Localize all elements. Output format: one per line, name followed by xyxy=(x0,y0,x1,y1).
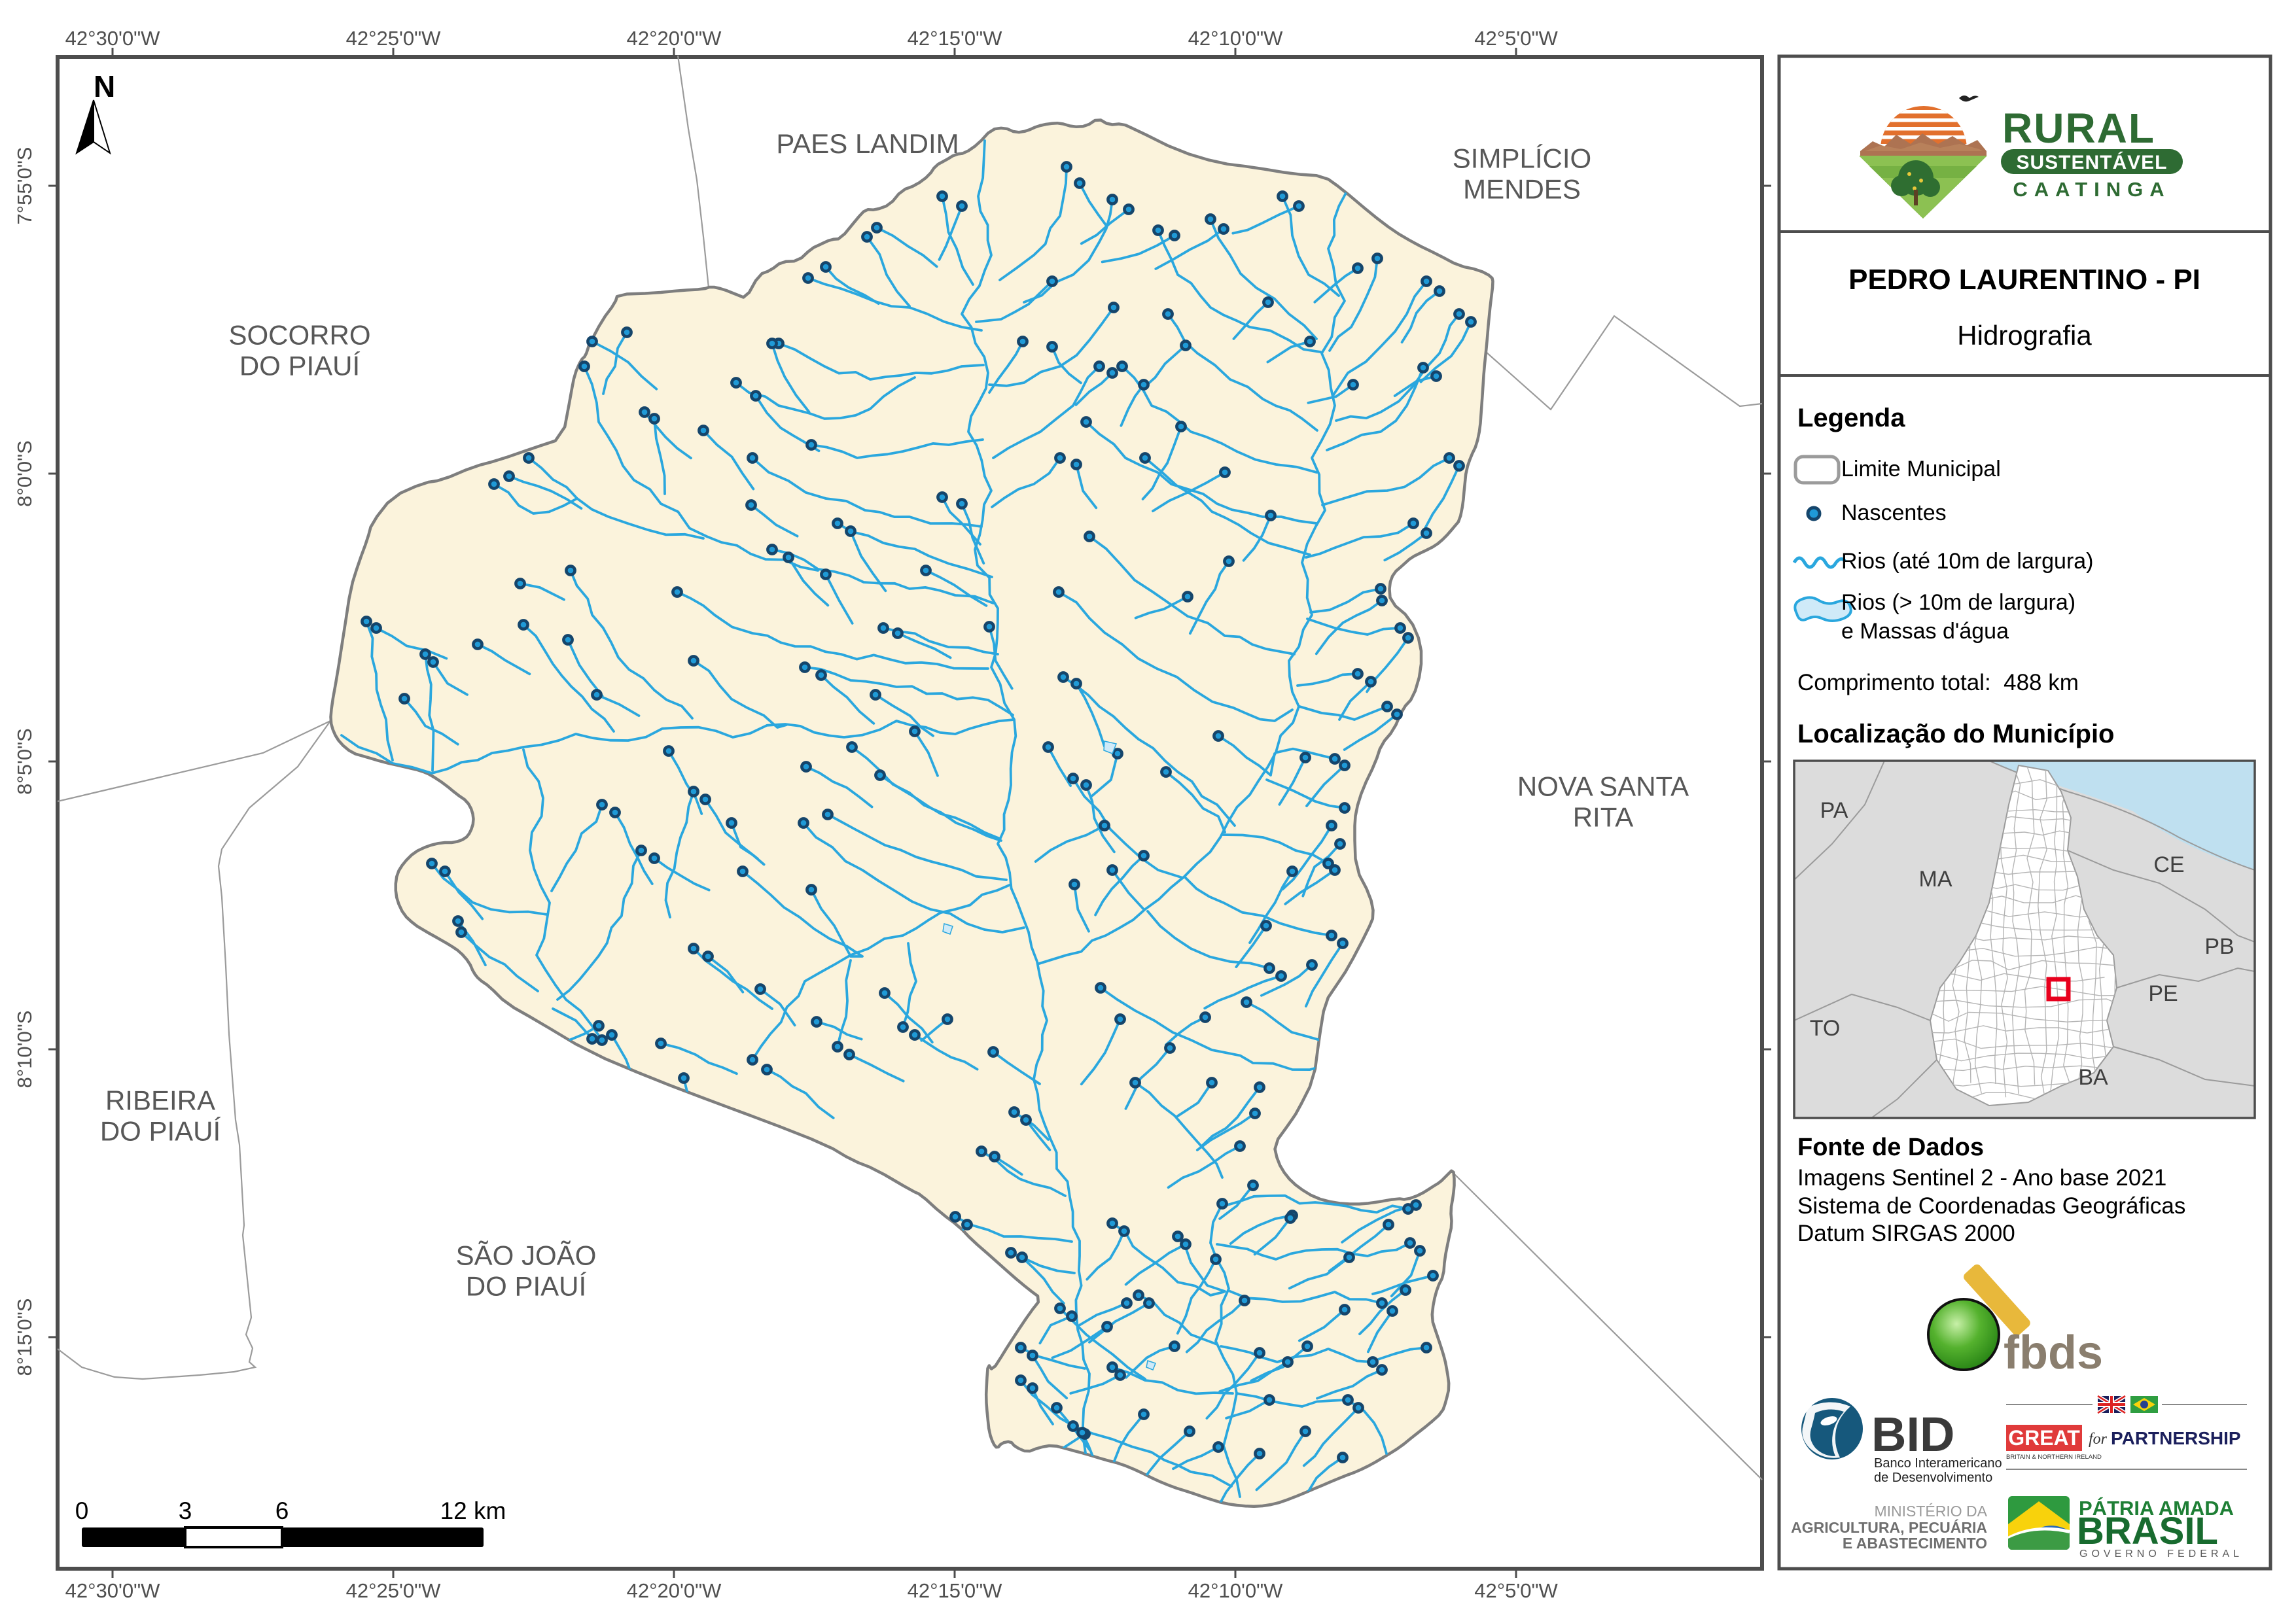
svg-text:Localização do Município: Localização do Município xyxy=(1797,720,2115,748)
svg-text:fbds: fbds xyxy=(2004,1327,2103,1379)
svg-text:8°0'0"S: 8°0'0"S xyxy=(13,440,36,507)
svg-text:PEDRO LAURENTINO - PI: PEDRO LAURENTINO - PI xyxy=(1848,264,2200,296)
svg-text:DO PIAUÍ: DO PIAUÍ xyxy=(466,1271,587,1302)
svg-text:0: 0 xyxy=(75,1497,89,1524)
svg-text:PE: PE xyxy=(2148,981,2178,1006)
svg-text:42°15'0"W: 42°15'0"W xyxy=(908,1579,1003,1602)
svg-text:Nascentes: Nascentes xyxy=(1841,500,1947,525)
svg-text:GOVERNO FEDERAL: GOVERNO FEDERAL xyxy=(2079,1548,2243,1560)
svg-text:42°10'0"W: 42°10'0"W xyxy=(1188,1579,1284,1602)
svg-text:Banco Interamericano: Banco Interamericano xyxy=(1874,1456,2002,1471)
svg-text:42°20'0"W: 42°20'0"W xyxy=(627,27,722,50)
svg-text:42°20'0"W: 42°20'0"W xyxy=(627,1579,722,1602)
svg-text:RIBEIRA: RIBEIRA xyxy=(105,1085,215,1116)
svg-text:42°30'0"W: 42°30'0"W xyxy=(65,27,161,50)
svg-text:MINISTÉRIO DA: MINISTÉRIO DA xyxy=(1874,1503,1987,1520)
svg-text:Datum SIRGAS 2000: Datum SIRGAS 2000 xyxy=(1797,1221,2015,1246)
svg-text:CAATINGA: CAATINGA xyxy=(2013,178,2170,201)
svg-text:6: 6 xyxy=(275,1497,289,1524)
svg-text:Imagens Sentinel 2 - Ano base: Imagens Sentinel 2 - Ano base 2021 xyxy=(1797,1165,2166,1191)
svg-text:SOCORRO: SOCORRO xyxy=(228,320,370,351)
svg-text:42°30'0"W: 42°30'0"W xyxy=(65,1579,161,1602)
svg-text:Legenda: Legenda xyxy=(1797,404,1905,432)
svg-text:RURAL: RURAL xyxy=(2002,105,2155,152)
svg-text:PB: PB xyxy=(2204,934,2234,959)
svg-text:BRASIL: BRASIL xyxy=(2077,1510,2218,1552)
svg-text:42°5'0"W: 42°5'0"W xyxy=(1474,1579,1558,1602)
svg-text:BRITAIN & NORTHERN IRELAND: BRITAIN & NORTHERN IRELAND xyxy=(2006,1454,2102,1461)
svg-text:SÃO JOÃO: SÃO JOÃO xyxy=(456,1240,597,1271)
svg-text:42°15'0"W: 42°15'0"W xyxy=(908,27,1003,50)
svg-text:E ABASTECIMENTO: E ABASTECIMENTO xyxy=(1843,1535,1987,1552)
svg-text:MA: MA xyxy=(1919,867,1952,892)
svg-text:PAES LANDIM: PAES LANDIM xyxy=(776,128,959,159)
svg-text:PA: PA xyxy=(1820,798,1848,823)
svg-text:Comprimento total: 488 km: Comprimento total: 488 km xyxy=(1797,670,2079,695)
svg-text:MENDES: MENDES xyxy=(1463,174,1581,205)
svg-text:12 km: 12 km xyxy=(440,1497,506,1524)
svg-text:RITA: RITA xyxy=(1573,802,1634,833)
svg-text:GREAT: GREAT xyxy=(2008,1426,2080,1450)
svg-text:Hidrografia: Hidrografia xyxy=(1957,320,2092,351)
svg-text:SIMPLÍCIO: SIMPLÍCIO xyxy=(1453,143,1591,174)
svg-text:e Massas d'água: e Massas d'água xyxy=(1841,619,2009,644)
svg-text:N: N xyxy=(94,69,115,103)
svg-text:Sistema de Coordenadas Geográf: Sistema de Coordenadas Geográficas xyxy=(1797,1193,2185,1219)
svg-text:BA: BA xyxy=(2078,1065,2108,1090)
svg-text:TO: TO xyxy=(1810,1016,1841,1041)
svg-text:SUSTENTÁVEL: SUSTENTÁVEL xyxy=(2016,151,2167,173)
svg-text:7°55'0"S: 7°55'0"S xyxy=(13,147,36,225)
svg-text:DO PIAUÍ: DO PIAUÍ xyxy=(100,1116,221,1147)
svg-text:Rios (até 10m de largura): Rios (até 10m de largura) xyxy=(1841,549,2094,574)
svg-text:8°15'0"S: 8°15'0"S xyxy=(13,1299,36,1376)
svg-text:42°5'0"W: 42°5'0"W xyxy=(1474,27,1558,50)
svg-text:Limite Municipal: Limite Municipal xyxy=(1841,457,2001,481)
svg-text:DO PIAUÍ: DO PIAUÍ xyxy=(239,351,361,381)
svg-text:Fonte de Dados: Fonte de Dados xyxy=(1797,1134,1984,1161)
svg-text:AGRICULTURA, PECUÁRIA: AGRICULTURA, PECUÁRIA xyxy=(1791,1518,1987,1536)
svg-text:42°25'0"W: 42°25'0"W xyxy=(346,27,442,50)
svg-text:PARTNERSHIP: PARTNERSHIP xyxy=(2111,1428,2241,1448)
svg-text:for: for xyxy=(2089,1431,2108,1448)
svg-text:BID: BID xyxy=(1871,1407,1954,1461)
svg-text:Rios (> 10m de largura): Rios (> 10m de largura) xyxy=(1841,590,2075,615)
svg-text:42°25'0"W: 42°25'0"W xyxy=(346,1579,442,1602)
svg-text:CE: CE xyxy=(2153,852,2184,877)
svg-text:3: 3 xyxy=(179,1497,192,1524)
svg-text:42°10'0"W: 42°10'0"W xyxy=(1188,27,1284,50)
svg-text:8°5'0"S: 8°5'0"S xyxy=(13,728,36,795)
svg-text:NOVA SANTA: NOVA SANTA xyxy=(1517,771,1689,802)
svg-text:8°10'0"S: 8°10'0"S xyxy=(13,1011,36,1089)
svg-text:de Desenvolvimento: de Desenvolvimento xyxy=(1874,1471,1992,1485)
